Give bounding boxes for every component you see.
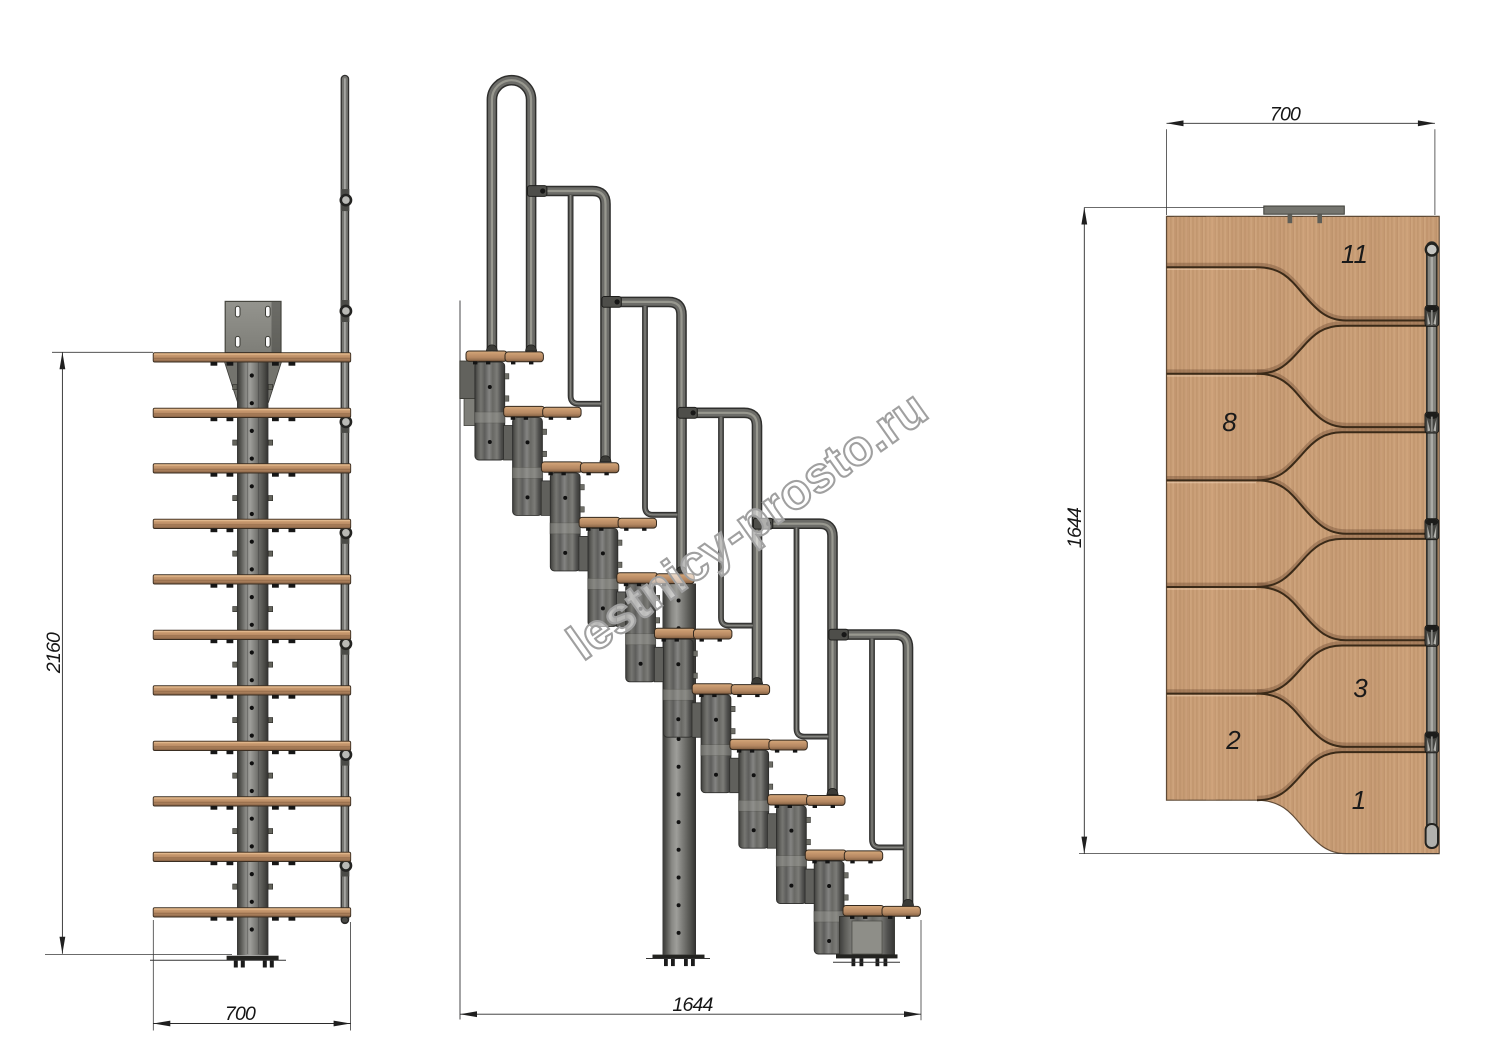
svg-text:11: 11 [1341,239,1368,269]
svg-text:2: 2 [1225,725,1241,755]
svg-text:700: 700 [1270,103,1301,125]
svg-text:1644: 1644 [672,994,713,1016]
svg-text:1: 1 [1352,785,1366,815]
svg-text:700: 700 [225,1003,256,1025]
svg-text:3: 3 [1353,673,1368,703]
svg-text:8: 8 [1222,407,1237,437]
svg-text:1644: 1644 [1064,507,1086,548]
svg-text:2160: 2160 [43,632,65,674]
